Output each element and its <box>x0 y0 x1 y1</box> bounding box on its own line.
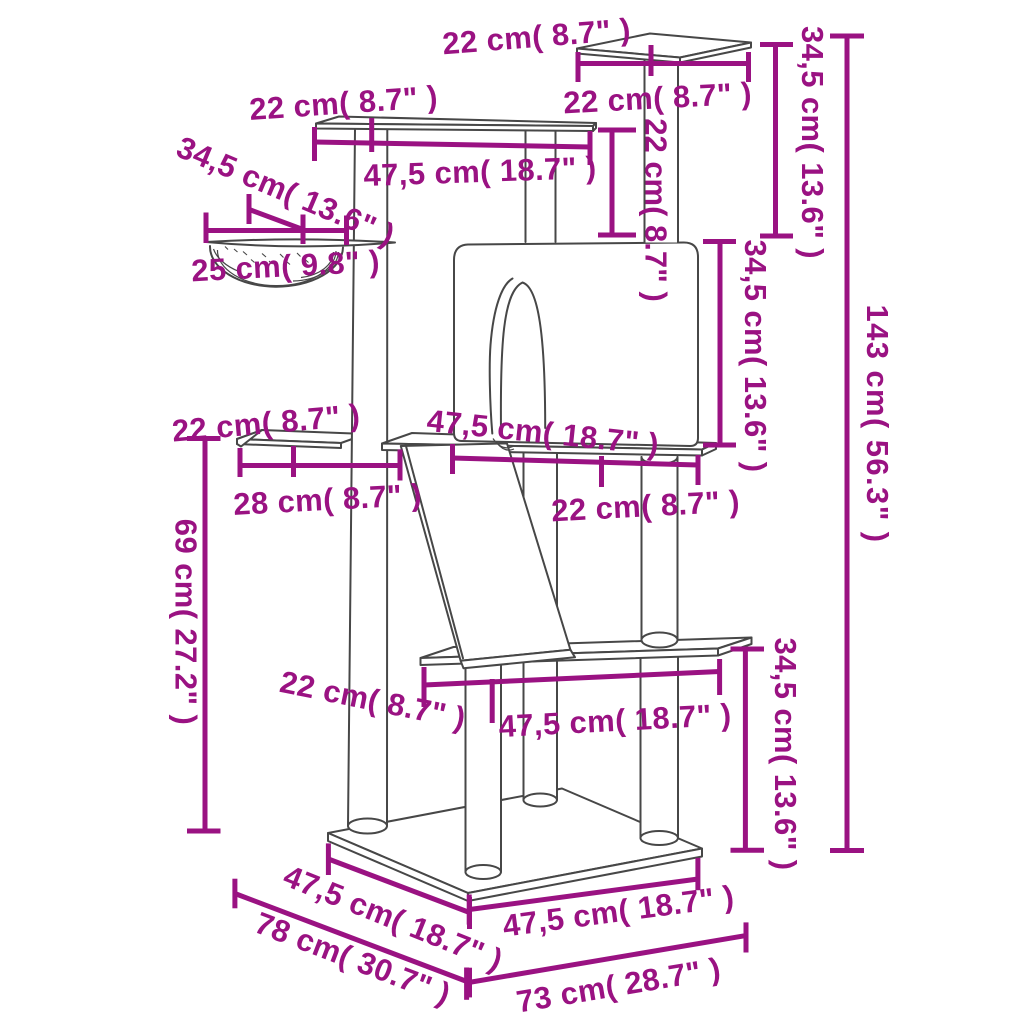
svg-text:34,5 cm( 13.6" ): 34,5 cm( 13.6" ) <box>738 239 773 472</box>
svg-text:34,5 cm( 13.6" ): 34,5 cm( 13.6" ) <box>795 26 830 259</box>
svg-text:69 cm( 27.2" ): 69 cm( 27.2" ) <box>169 519 204 725</box>
svg-text:34,5 cm( 13.6" ): 34,5 cm( 13.6" ) <box>768 637 803 870</box>
svg-text:22 cm( 8.7" ): 22 cm( 8.7" ) <box>639 118 674 302</box>
svg-text:143 cm( 56.3" ): 143 cm( 56.3" ) <box>860 304 895 543</box>
